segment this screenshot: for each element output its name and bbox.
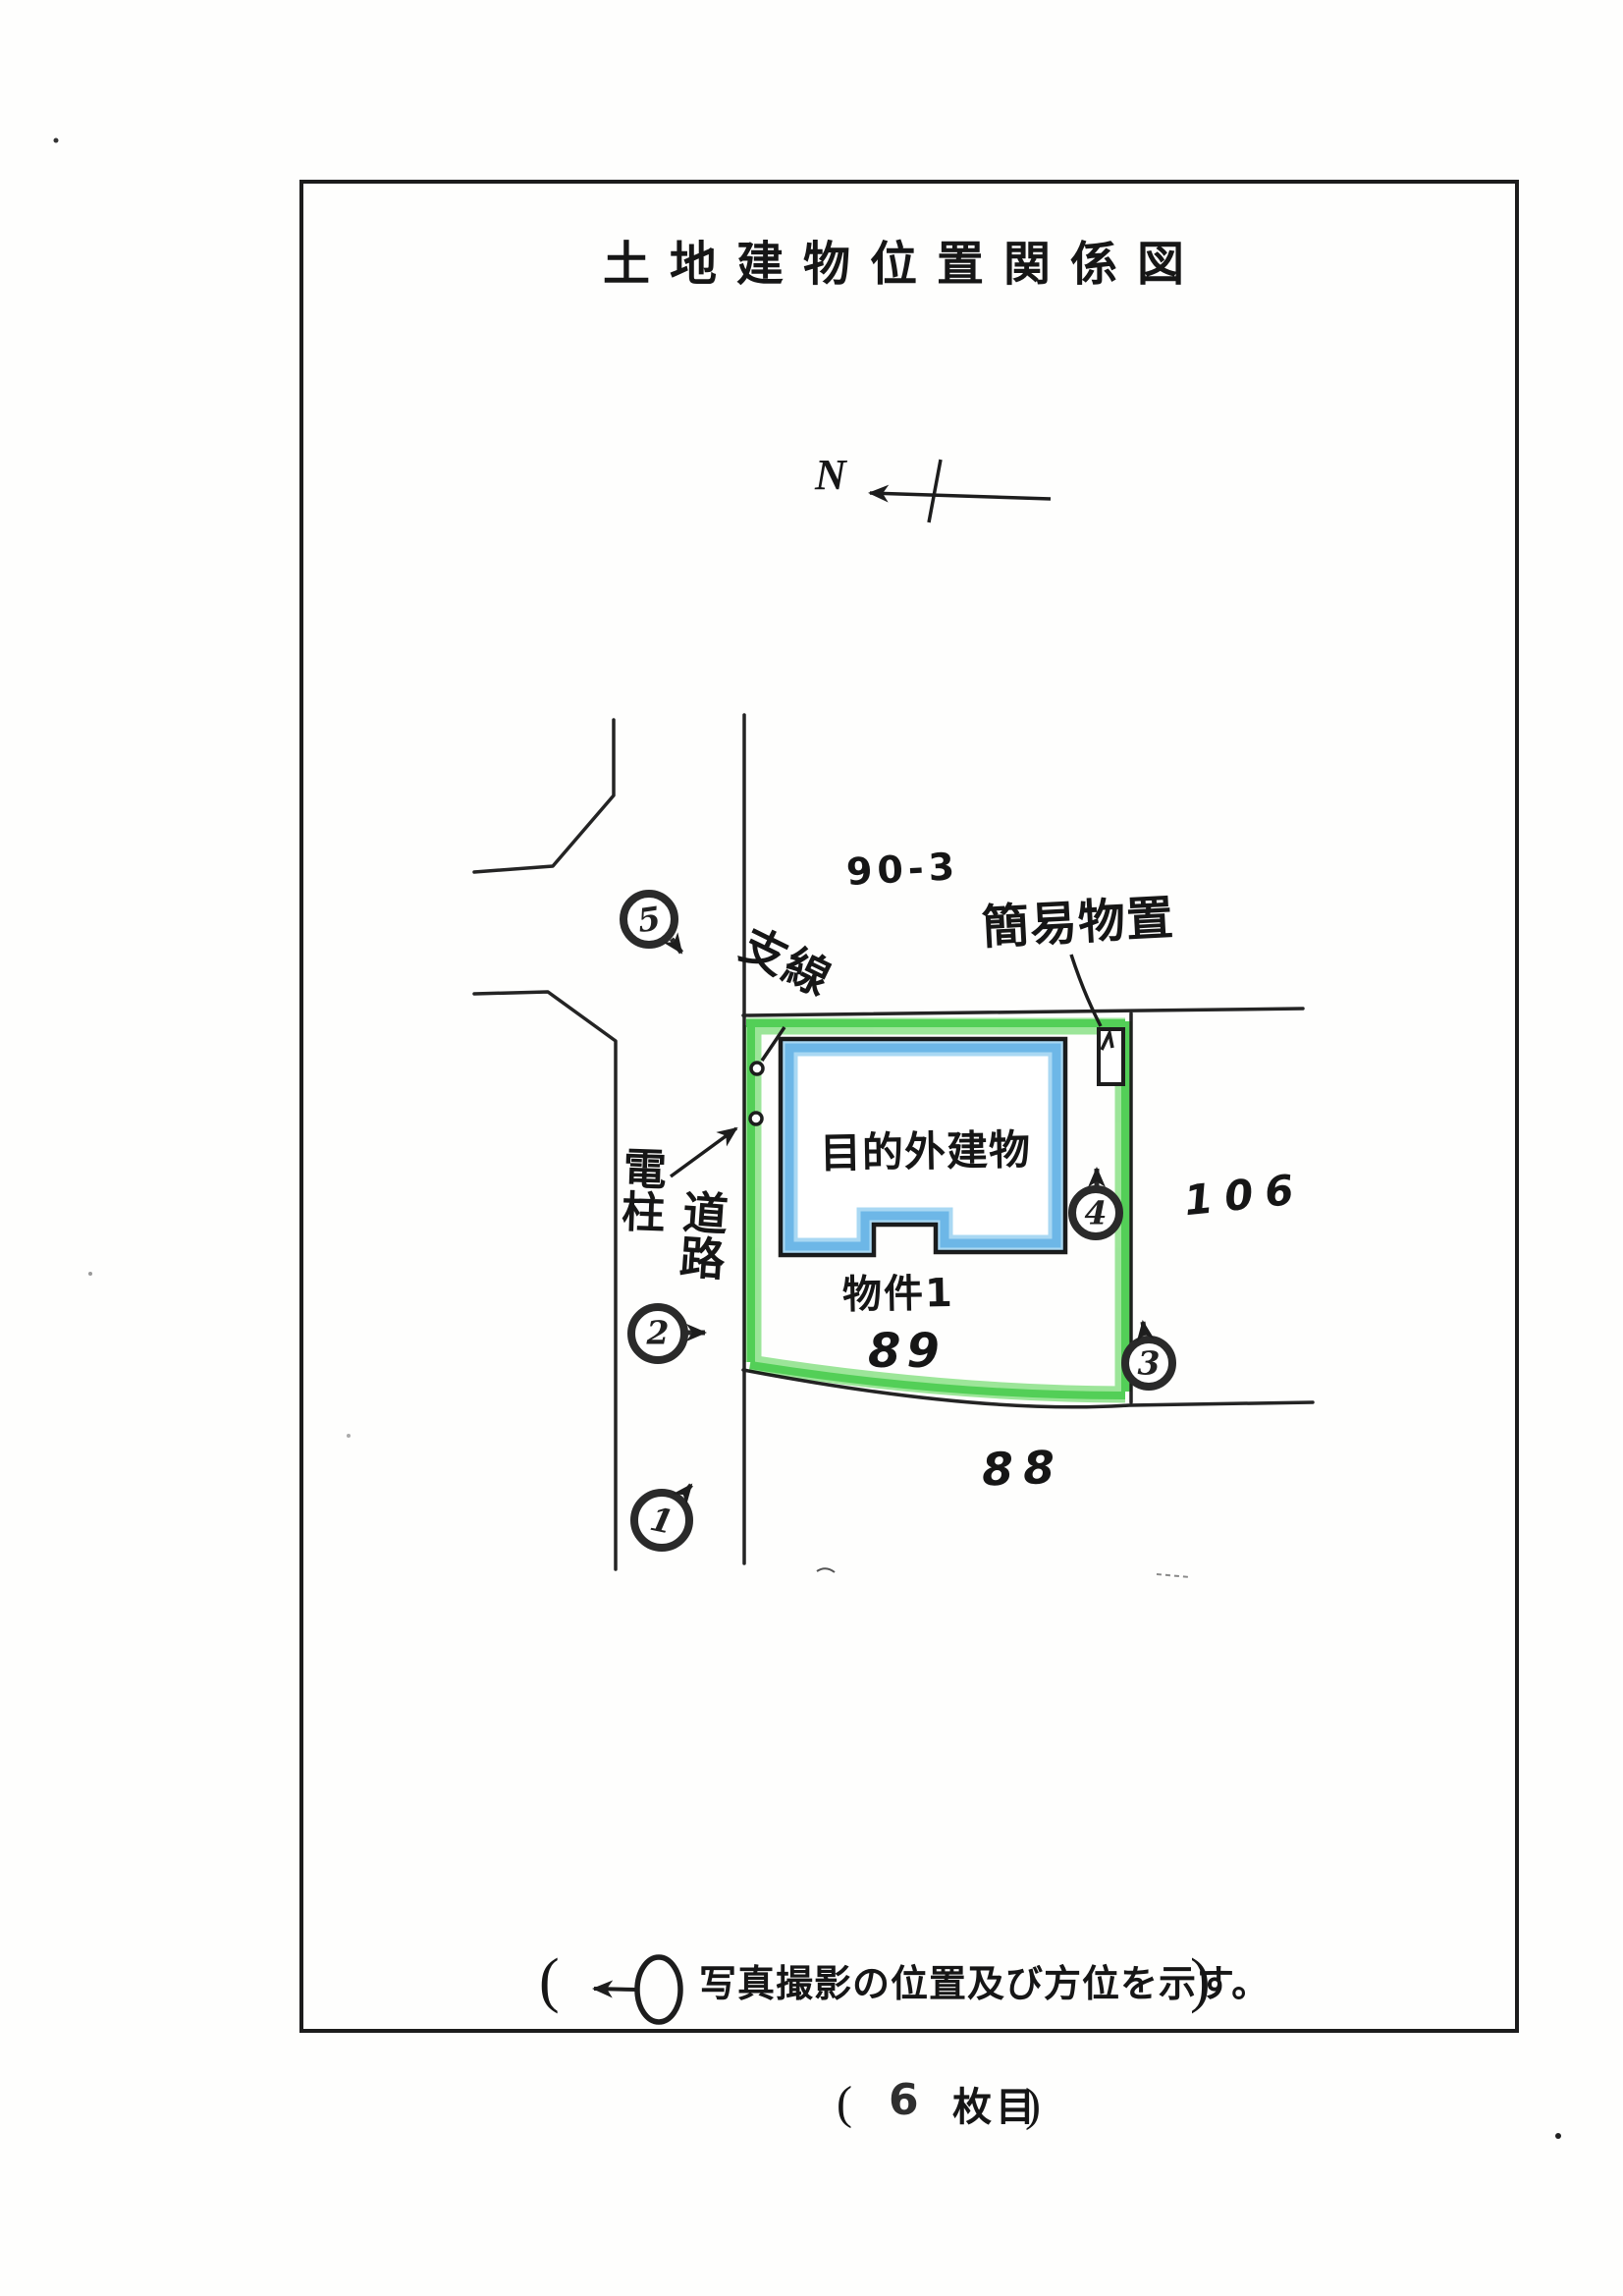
- utility-pole-leader-arrow: [671, 1128, 736, 1176]
- legend-close-paren: ): [1190, 1950, 1211, 2011]
- scanned-site-plan-page: 土地建物位置関係図 N 90-3 支線 簡易物置 目的外建物 電柱 道路 物件1…: [0, 0, 1623, 2296]
- lot-number-106: 106: [1182, 1169, 1307, 1223]
- offsite-building-label: 目的外建物: [820, 1129, 1032, 1175]
- footer-close-paren: ): [1025, 2082, 1041, 2129]
- lot-number-89: 89: [868, 1328, 946, 1375]
- utility-pole-icon: [750, 1113, 762, 1124]
- photo-marker-2-number: 2: [647, 1314, 670, 1352]
- road-edge-lower-left: [474, 992, 616, 1569]
- road-lines: [474, 715, 744, 1569]
- lot-number-88: 88: [981, 1445, 1065, 1493]
- site-plan-linework: [0, 0, 1623, 2296]
- footer-page-number: 6: [889, 2079, 919, 2122]
- photo-marker-4-number: 4: [1085, 1194, 1108, 1232]
- north-boundary-line: [743, 1009, 1303, 1015]
- legend-open-paren: (: [539, 1950, 560, 2011]
- footer-open-paren: (: [837, 2080, 852, 2127]
- property-name-label: 物件1: [842, 1274, 955, 1315]
- page-title: 土地建物位置関係図: [603, 242, 1204, 289]
- compass-north-label: N: [815, 454, 846, 497]
- legend-symbol: [594, 1957, 680, 2022]
- storage-shed-label: 簡易物置: [981, 895, 1175, 952]
- storage-shed: [1099, 1029, 1123, 1084]
- legend-text: 写真撮影の位置及び方位を示す。: [699, 1966, 1270, 2003]
- shed-leader-line: [1071, 955, 1101, 1026]
- north-arrow: [870, 460, 1051, 522]
- road-edge-upper-left: [474, 720, 614, 872]
- lot-number-90-3: 90-3: [845, 847, 960, 891]
- photo-marker-3-number: 3: [1138, 1344, 1161, 1383]
- utility-pole-label: 電柱: [616, 1145, 662, 1232]
- road-label: 道路: [676, 1188, 727, 1282]
